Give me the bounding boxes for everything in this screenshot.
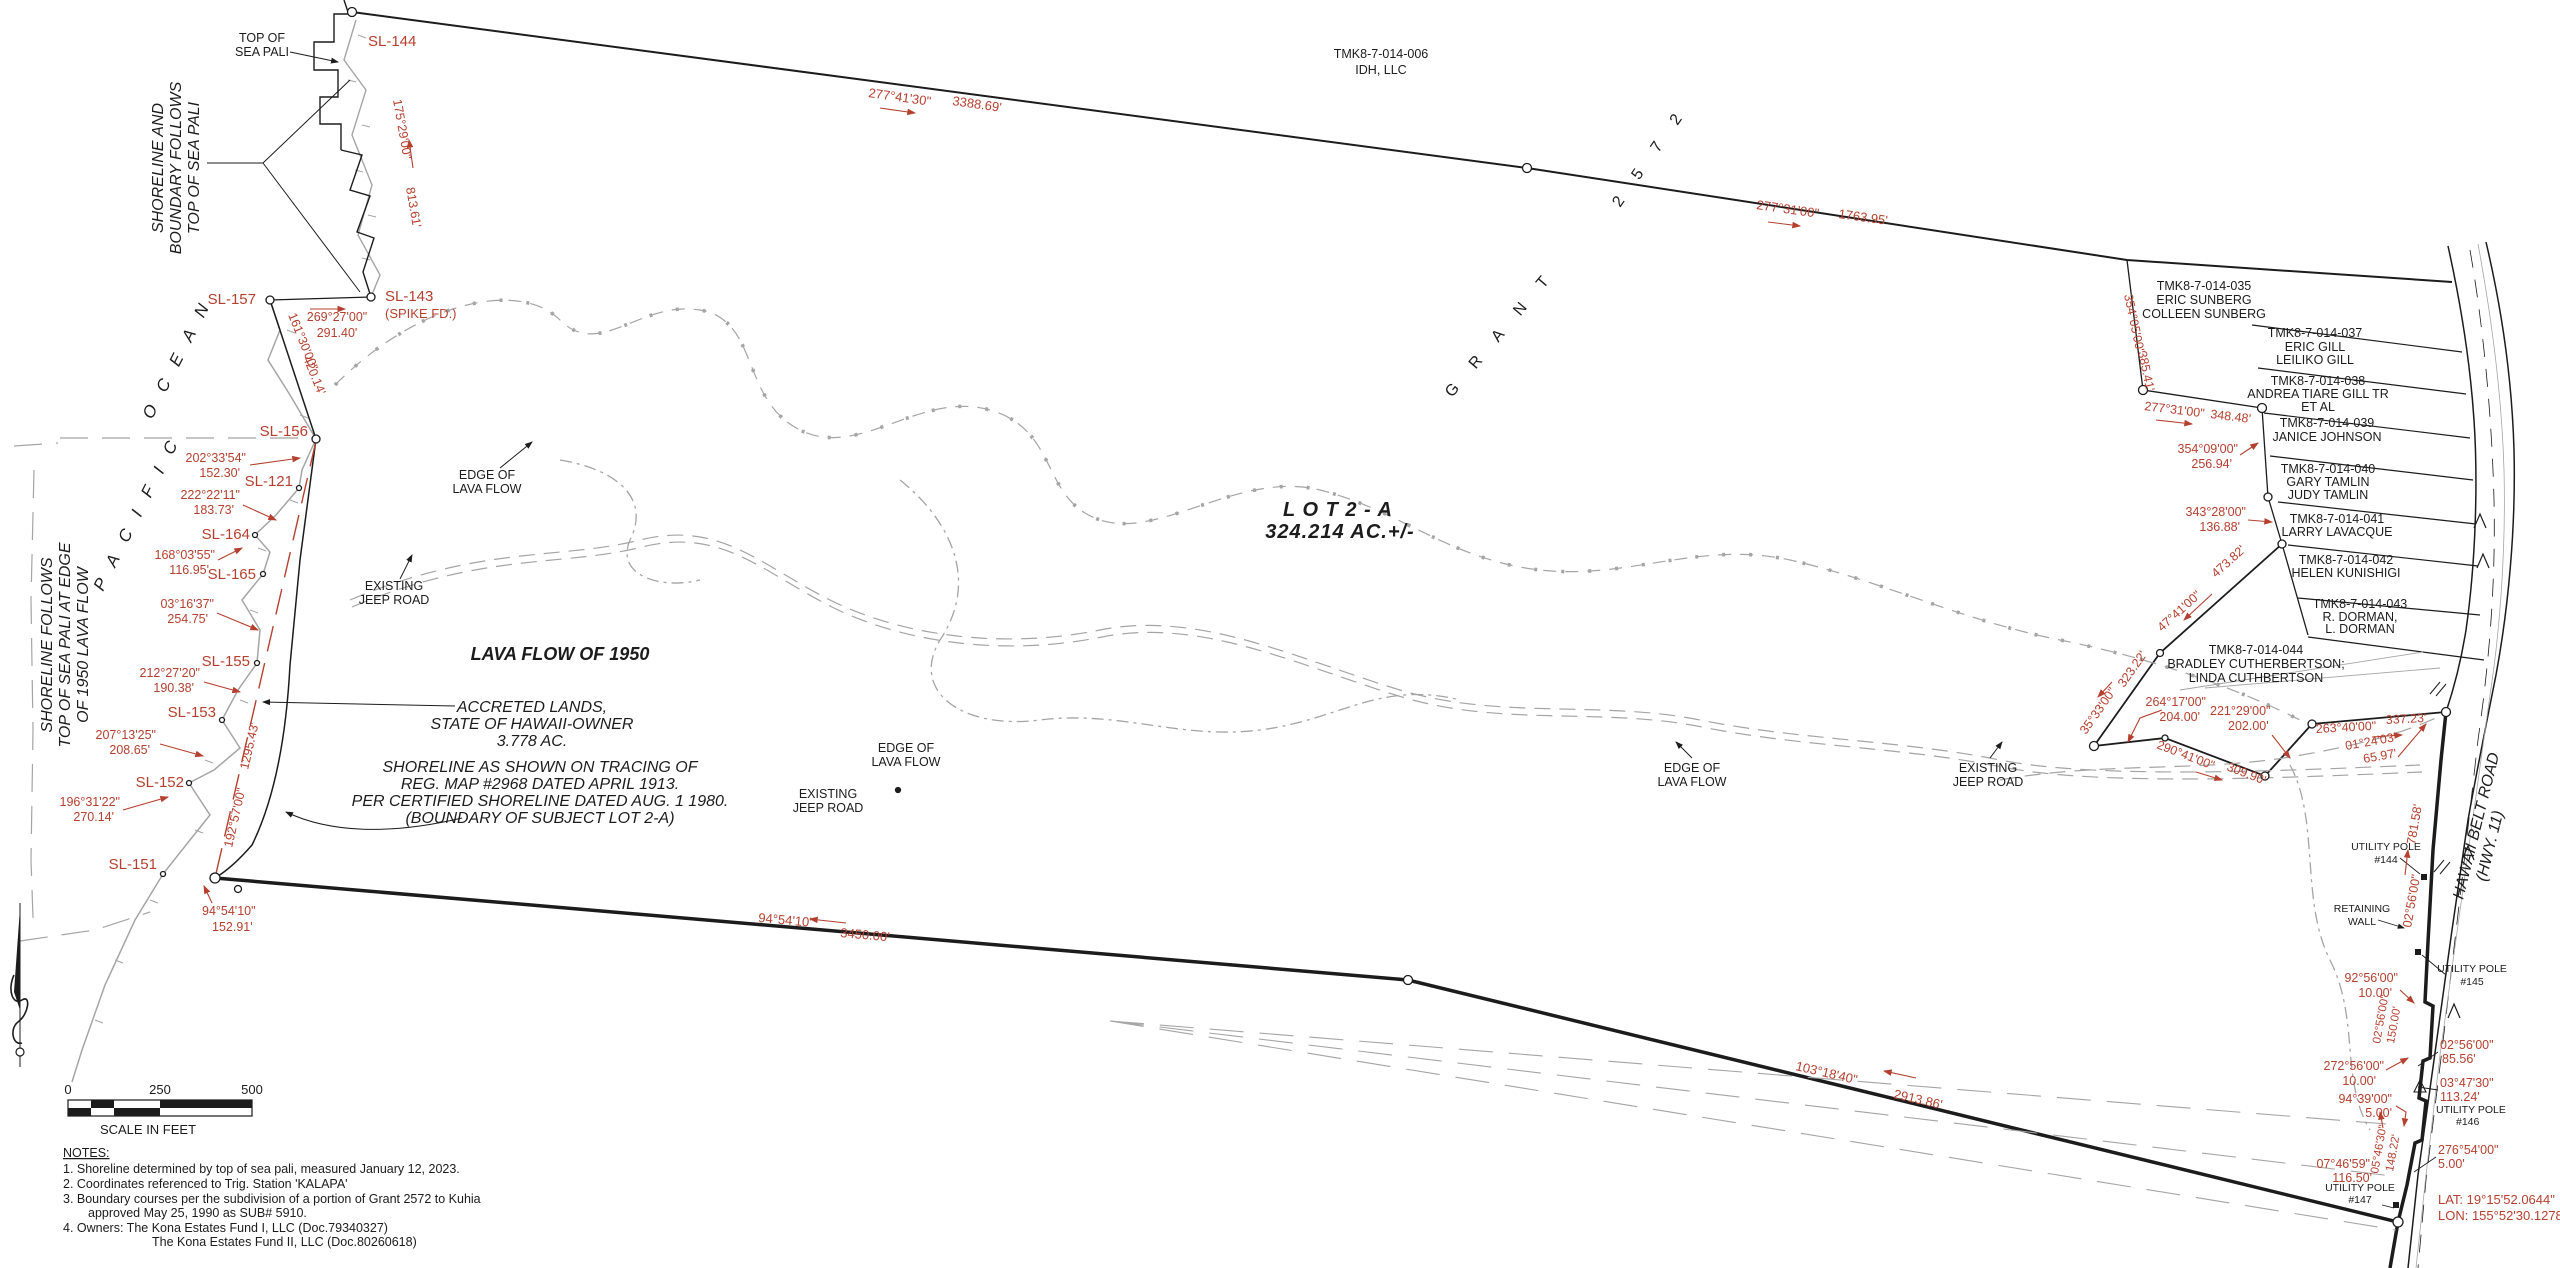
longitude-label: LON: 155°52'30.1278" xyxy=(2438,1208,2560,1223)
svg-text:TMK8-7-014-039: TMK8-7-014-039 xyxy=(2280,416,2375,430)
top-of-sea-pali-label: SEA PALI xyxy=(235,45,289,59)
grant-word-label: G R A N T xyxy=(1442,266,1559,401)
bearing-sl144: 175°29'00" xyxy=(390,98,414,160)
scale-bar: 0 250 500 SCALE IN FEET xyxy=(64,1082,262,1137)
svg-text:HELEN KUNISHIGI: HELEN KUNISHIGI xyxy=(2291,566,2400,580)
bearing-040-west: 343°28'00" xyxy=(2186,505,2247,519)
latitude-label: LAT: 19°15'52.0644" xyxy=(2438,1192,2555,1207)
distance-290: 309.90' xyxy=(2225,760,2268,788)
north-arrow xyxy=(11,903,28,1067)
svg-text:SHORELINE FOLLOWS: SHORELINE FOLLOWS xyxy=(39,557,56,732)
distance-263: 337.23' xyxy=(2385,711,2426,727)
distance-035-west: 385.41' xyxy=(2135,350,2157,393)
svg-text:ERIC GILL: ERIC GILL xyxy=(2285,340,2345,354)
edge-of-lava-flow-label-3: LAVA FLOW xyxy=(1657,775,1726,789)
parcel-006-tmk: TMK8-7-014-006 xyxy=(1334,47,1429,61)
note-shoreline-boundary-follows: SHORELINE AND BOUNDARY FOLLOWS TOP OF SE… xyxy=(150,81,203,254)
distance-sl156: 152.30' xyxy=(199,466,240,480)
retaining-wall-label: RETAINING xyxy=(2334,903,2390,915)
distance-sl153: 208.65' xyxy=(109,743,150,757)
distance-264: 204.00' xyxy=(2159,710,2200,724)
svg-text:LEILIKO GILL: LEILIKO GILL xyxy=(2276,353,2354,367)
shoreline-tracing-note: SHORELINE AS SHOWN ON TRACING OF xyxy=(383,759,699,776)
survey-drawing-page: TOP OF SEA PALI SL-144 175°29'00" 813.61… xyxy=(0,0,2560,1268)
svg-text:TMK8-7-014-037: TMK8-7-014-037 xyxy=(2268,326,2363,340)
parcel-006-owner: IDH, LLC xyxy=(1355,63,1406,77)
grant-number-label: 2 5 7 2 xyxy=(1609,103,1691,210)
distance-221: 202.00' xyxy=(2228,719,2269,733)
ocean-label-ocean: O C E A N xyxy=(139,295,216,421)
existing-jeep-road-label-1: JEEP ROAD xyxy=(359,593,430,607)
distance-272: 10.00' xyxy=(2342,1074,2376,1088)
point-label-sl165: SL-165 xyxy=(208,566,256,583)
point-label-sl157: SL-157 xyxy=(208,291,256,308)
utility-pole-144-label: UTILITY POLE xyxy=(2351,841,2421,853)
distance-sl151: 152.91' xyxy=(212,920,253,934)
distance-sl143: 291.40' xyxy=(317,326,358,340)
distance-sl152: 270.14' xyxy=(73,810,114,824)
point-label-sl164: SL-164 xyxy=(202,526,250,543)
utility-pole-146-number: #146 xyxy=(2456,1116,2480,1128)
notes-block: NOTES: 1. Shoreline determined by top of… xyxy=(63,1146,481,1249)
bearing-sl155: 212°27'20" xyxy=(140,666,201,680)
svg-text:BOUNDARY FOLLOWS: BOUNDARY FOLLOWS xyxy=(168,81,185,254)
svg-text:SHORELINE AND: SHORELINE AND xyxy=(150,103,167,234)
edge-of-lava-flow-lines xyxy=(335,300,2370,1130)
bearing-sl153: 207°13'25" xyxy=(96,728,157,742)
svg-text:TMK8-7-014-043: TMK8-7-014-043 xyxy=(2313,597,2408,611)
lot-area-label: 324.214 AC.+/- xyxy=(1265,521,1414,543)
svg-text:TMK8-7-014-040: TMK8-7-014-040 xyxy=(2281,462,2376,476)
boundary-vertices xyxy=(161,8,2451,1228)
svg-text:COLLEEN SUNBERG: COLLEEN SUNBERG xyxy=(2142,307,2266,321)
bearing-039-west: 354°09'00" xyxy=(2178,442,2239,456)
svg-text:GARY TAMLIN: GARY TAMLIN xyxy=(2286,475,2369,489)
edge-of-lava-flow-label-1: EDGE OF xyxy=(459,468,516,482)
svg-text:TMK8-7-014-038: TMK8-7-014-038 xyxy=(2271,374,2366,388)
bearing-0256c: 02°56'00" xyxy=(2440,1038,2494,1052)
accreted-lands-note: 3.778 AC. xyxy=(497,733,568,750)
accreted-lands-note: ACCRETED LANDS, xyxy=(456,699,607,716)
note-1: 1. Shoreline determined by top of sea pa… xyxy=(63,1162,460,1176)
accreted-lands-note: STATE OF HAWAII-OWNER xyxy=(431,716,634,733)
point-label-sl121: SL-121 xyxy=(245,473,293,490)
svg-text:ANDREA TIARE GILL TR: ANDREA TIARE GILL TR xyxy=(2247,387,2388,401)
distance-north-2: 1763.95' xyxy=(1838,206,1889,228)
distance-sl155: 190.38' xyxy=(153,681,194,695)
bearing-sl151: 94°54'10" xyxy=(202,904,256,918)
distance-sl144: 813.61' xyxy=(403,186,424,228)
existing-jeep-road-lines xyxy=(350,535,2440,780)
distance-certified-line: 1295.43' xyxy=(237,721,261,771)
distance-sl165: 254.75' xyxy=(167,612,208,626)
utility-pole-145-number: #145 xyxy=(2460,976,2484,988)
scale-caption: SCALE IN FEET xyxy=(100,1122,196,1137)
bearing-9256: 92°56'00" xyxy=(2344,971,2398,985)
bearing-certified-line: 192°57'00" xyxy=(221,787,248,849)
lava-flow-1950-label: LAVA FLOW OF 1950 xyxy=(471,644,650,664)
bearing-9439: 94°39'00" xyxy=(2338,1092,2392,1106)
leader-lines xyxy=(207,52,2446,1208)
distance-0256c: 85.56' xyxy=(2442,1052,2476,1066)
point-label-sl144: SL-144 xyxy=(368,33,416,50)
svg-text:TMK8-7-014-042: TMK8-7-014-042 xyxy=(2299,553,2394,567)
point-label-sl152: SL-152 xyxy=(136,774,184,791)
bearing-0347: 03°47'30" xyxy=(2440,1076,2494,1090)
shoreline-tracing-note: (BOUNDARY OF SUBJECT LOT 2-A) xyxy=(405,810,674,827)
note-4-continued: The Kona Estates Fund II, LLC (Doc.80260… xyxy=(152,1235,417,1249)
top-of-sea-pali-label: TOP OF xyxy=(239,31,285,45)
svg-text:TOP OF SEA PALI AT EDGE: TOP OF SEA PALI AT EDGE xyxy=(57,542,74,747)
bearing-sl164: 168°03'55" xyxy=(155,548,216,562)
distance-035-south: 348.48' xyxy=(2210,407,2252,426)
edge-of-lava-flow-label-1: LAVA FLOW xyxy=(452,482,521,496)
bearing-north-2: 277°31'00" xyxy=(1756,197,1821,221)
utility-pole-146-label: UTILITY POLE xyxy=(2436,1104,2506,1116)
utility-pole-147-label: UTILITY POLE xyxy=(2325,1182,2395,1194)
edge-of-lava-flow-label-2: EDGE OF xyxy=(878,741,935,755)
existing-jeep-road-label-2: JEEP ROAD xyxy=(793,801,864,815)
svg-text:JANICE JOHNSON: JANICE JOHNSON xyxy=(2272,430,2381,444)
distance-276: 5.00' xyxy=(2438,1157,2465,1171)
bearing-sl121: 222°22'11" xyxy=(180,488,240,502)
svg-text:L. DORMAN: L. DORMAN xyxy=(2325,622,2394,636)
shoreline-tracing-note: REG. MAP #2968 DATED APRIL 1913. xyxy=(401,776,679,793)
scale-tick-250: 250 xyxy=(149,1082,171,1097)
notes-heading: NOTES: xyxy=(63,1146,110,1160)
note-3: 3. Boundary courses per the subdivision … xyxy=(63,1192,481,1206)
utility-pole-144-number: #144 xyxy=(2374,854,2398,866)
bearing-south-1: 94°54'10" xyxy=(758,910,815,930)
bearing-diagonal: 47°41'00" xyxy=(2155,588,2204,634)
lot-name-label: L O T 2 - A xyxy=(1283,499,1393,521)
note-4: 4. Owners: The Kona Estates Fund I, LLC … xyxy=(63,1221,388,1235)
bearing-221: 221°29'00" xyxy=(2210,704,2271,718)
point-label-sl155: SL-155 xyxy=(202,653,250,670)
existing-jeep-road-label-2: EXISTING xyxy=(799,787,857,801)
red-dimension-arrows xyxy=(123,108,2426,1128)
svg-text:OF 1950 LAVA FLOW: OF 1950 LAVA FLOW xyxy=(75,565,92,723)
point-note-sl143: (SPIKE FD.) xyxy=(385,306,457,321)
distance-south-1: 3450.00' xyxy=(840,925,891,944)
svg-text:ET AL: ET AL xyxy=(2301,400,2335,414)
svg-text:ERIC SUNBERG: ERIC SUNBERG xyxy=(2156,293,2251,307)
distance-sl157: 420.14' xyxy=(300,354,328,397)
lot-boundary xyxy=(215,12,2452,1268)
bearing-sl165: 03°16'37" xyxy=(160,597,214,611)
distance-road-1: 781.58' xyxy=(2404,803,2425,845)
bearing-sl143: 269°27'00" xyxy=(307,310,368,324)
retaining-wall-label: WALL xyxy=(2348,916,2376,928)
svg-text:JUDY TAMLIN: JUDY TAMLIN xyxy=(2288,488,2369,502)
svg-text:BRADLEY CUTHERBERTSON;: BRADLEY CUTHERBERTSON; xyxy=(2167,657,2344,671)
bearing-264: 264°17'00" xyxy=(2146,695,2207,709)
bearing-road-1: 02°56'00" xyxy=(2400,873,2423,928)
point-label-sl156: SL-156 xyxy=(260,423,308,440)
distance-9439: 5.00' xyxy=(2365,1106,2392,1120)
edge-of-lava-flow-label-2: LAVA FLOW xyxy=(871,755,940,769)
scale-tick-500: 500 xyxy=(241,1082,263,1097)
note-2: 2. Coordinates referenced to Trig. Stati… xyxy=(63,1177,348,1191)
point-label-sl153: SL-153 xyxy=(168,704,216,721)
existing-jeep-road-label-3: EXISTING xyxy=(1959,761,2017,775)
survey-map: TOP OF SEA PALI SL-144 175°29'00" 813.61… xyxy=(0,0,2560,1268)
bearing-sl152: 196°31'22" xyxy=(60,795,121,809)
svg-text:TMK8-7-014-035: TMK8-7-014-035 xyxy=(2157,279,2252,293)
bearing-035-west: 354°05'00" xyxy=(2121,293,2147,355)
utility-pole-145-label: UTILITY POLE xyxy=(2437,963,2507,975)
utility-pole-147-number: #147 xyxy=(2348,1194,2372,1206)
bearing-272: 272°56'00" xyxy=(2324,1059,2385,1073)
bearing-sl156: 202°33'54" xyxy=(186,451,247,465)
point-label-sl151: SL-151 xyxy=(109,856,157,873)
note-shoreline-follows: SHORELINE FOLLOWS TOP OF SEA PALI AT EDG… xyxy=(39,542,92,747)
converging-dashed-lines xyxy=(1110,1021,2396,1230)
bearing-3533: 35°33'00" xyxy=(2077,685,2119,737)
svg-text:TMK8-7-014-044: TMK8-7-014-044 xyxy=(2209,643,2304,657)
distance-diagonal: 473.82' xyxy=(2209,543,2249,581)
distance-039-west: 256.94' xyxy=(2191,457,2232,471)
scale-tick-0: 0 xyxy=(64,1082,71,1097)
svg-text:TMK8-7-014-041: TMK8-7-014-041 xyxy=(2290,512,2385,526)
svg-text:LINDA CUTHBERTSON: LINDA CUTHBERTSON xyxy=(2189,671,2324,685)
existing-jeep-road-label-3: JEEP ROAD xyxy=(1953,775,2024,789)
point-label-sl143: SL-143 xyxy=(385,288,433,305)
existing-jeep-road-label-1: EXISTING xyxy=(365,579,423,593)
distance-sl164: 116.95' xyxy=(169,563,209,577)
distance-3533: 323.22' xyxy=(2115,648,2150,689)
svg-text:LARRY LAVACQUE: LARRY LAVACQUE xyxy=(2282,525,2393,539)
note-3-continued: approved May 25, 1990 as SUB# 5910. xyxy=(88,1206,307,1220)
bearing-263: 263°40'00" xyxy=(2315,719,2376,736)
distance-south-2: 2913.86' xyxy=(1892,1086,1944,1112)
bearing-0746: 07°46'59" xyxy=(2316,1157,2370,1171)
svg-text:TOP OF SEA PALI: TOP OF SEA PALI xyxy=(186,101,203,234)
bearing-276: 276°54'00" xyxy=(2438,1143,2499,1157)
distance-sl121: 183.73' xyxy=(193,503,234,517)
edge-of-lava-flow-label-3: EDGE OF xyxy=(1664,761,1721,775)
bearing-035-south: 277°31'00" xyxy=(2144,399,2206,420)
distance-040-west: 136.88' xyxy=(2199,520,2240,534)
distance-0347: 113.24' xyxy=(2440,1090,2480,1104)
shoreline-tracing-note: PER CERTIFIED SHORELINE DATED AUG. 1 198… xyxy=(352,793,729,810)
